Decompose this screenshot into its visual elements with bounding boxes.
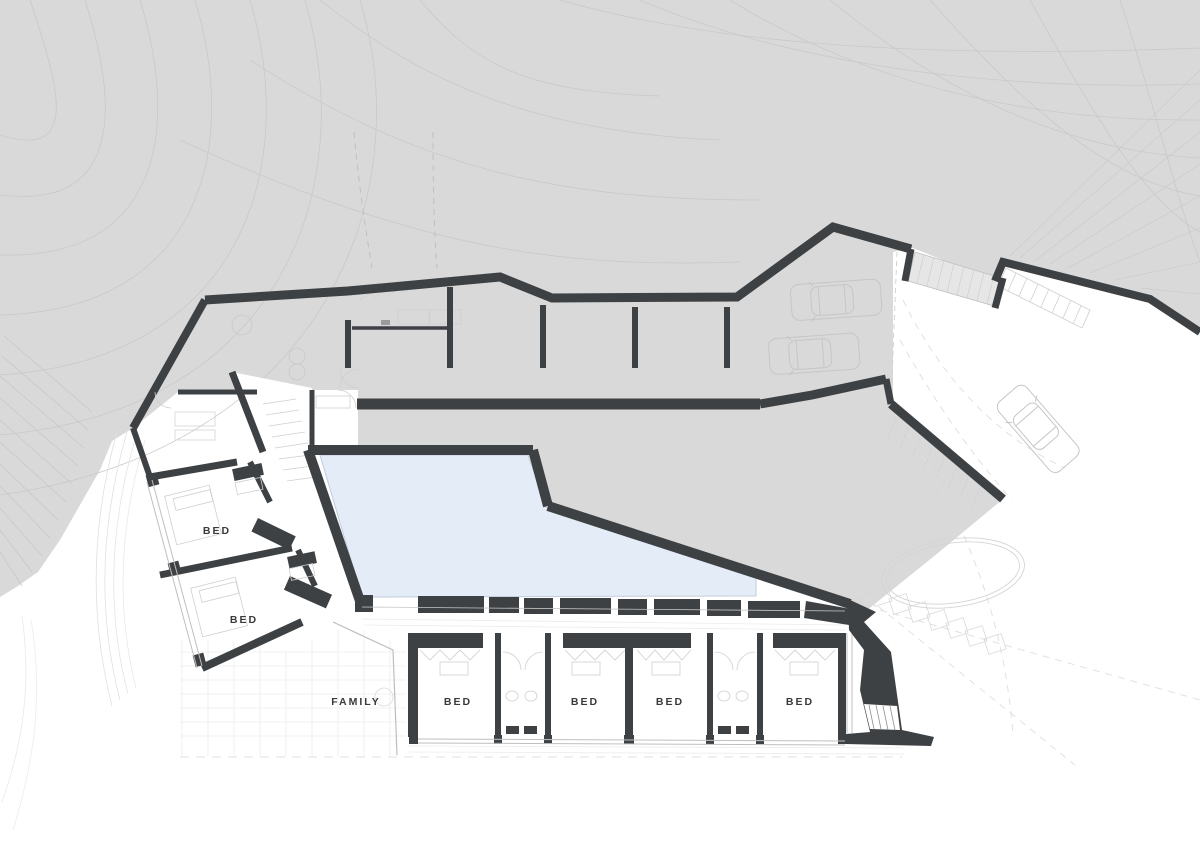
room-label: BED: [230, 614, 258, 626]
door-arc: [525, 652, 543, 670]
header: [773, 633, 840, 648]
floor-plan: BEDBEDFAMILYBEDBEDBEDBED: [0, 0, 1200, 849]
room-label: BED: [444, 696, 472, 708]
car-icon: [993, 381, 1084, 477]
door-arc: [503, 652, 521, 670]
door-arc: [715, 652, 733, 670]
wall: [408, 633, 418, 737]
floor-plan-svg: [0, 0, 1200, 849]
room-label: BED: [203, 525, 231, 537]
door-arc: [737, 652, 755, 670]
room-label: BED: [656, 696, 684, 708]
bedroom-wing: [408, 633, 852, 745]
room-label: BED: [571, 696, 599, 708]
header: [418, 633, 483, 648]
room-label: FAMILY: [331, 696, 381, 708]
room-label: BED: [786, 696, 814, 708]
